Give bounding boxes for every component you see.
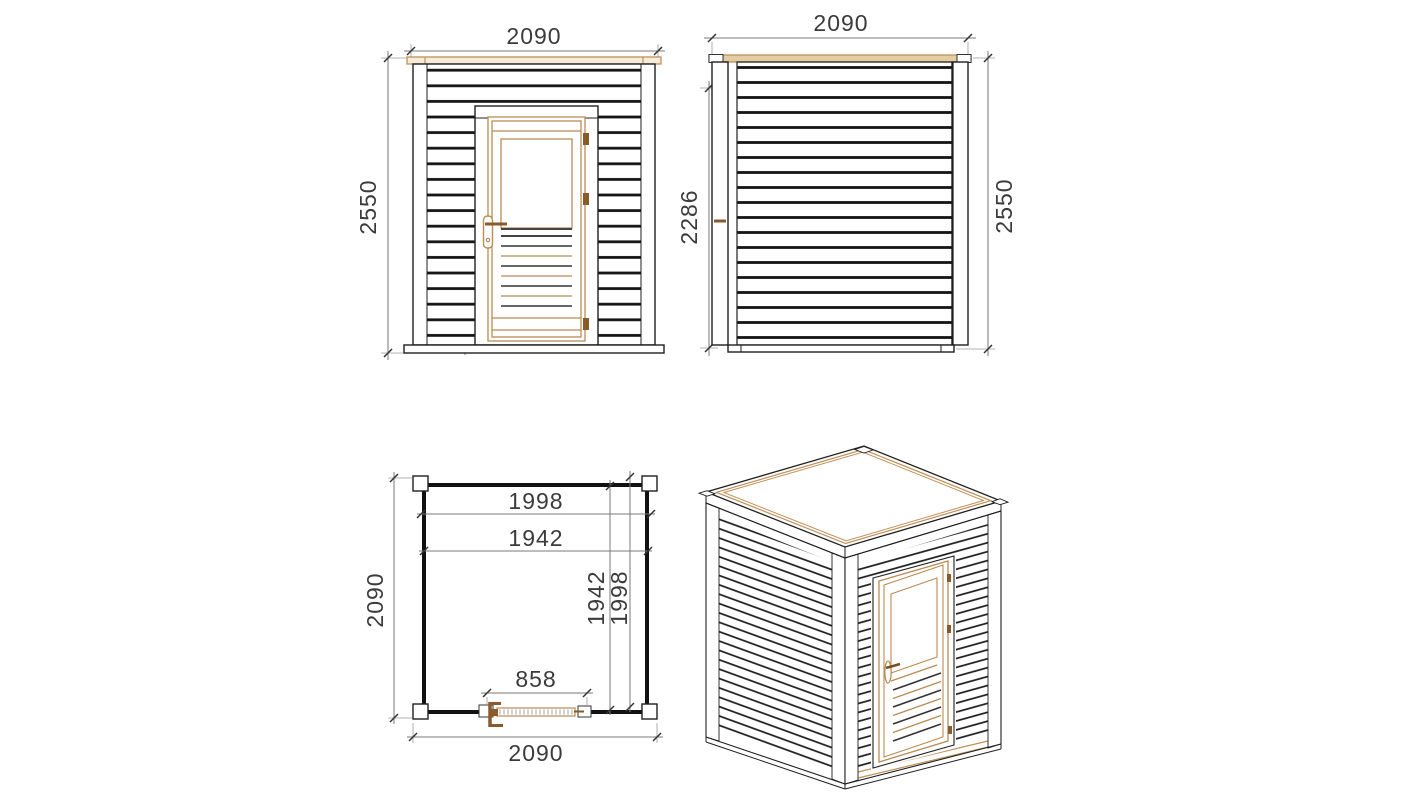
floor-plan-view: 1998 1942 1942 1998 858 xyxy=(362,471,663,766)
iso-door xyxy=(871,553,956,770)
plan-inner-width-a-label: 1998 xyxy=(508,488,563,514)
front-height-dimension: 2550 xyxy=(355,51,408,360)
iso-door-window xyxy=(891,578,937,673)
isometric-view xyxy=(699,446,1008,789)
plan-inner-width-dimension-b: 1942 xyxy=(419,525,652,555)
rear-base xyxy=(728,345,954,352)
plan-overall-width-dimension: 2090 xyxy=(407,723,663,766)
plan-overall-depth-dimension: 2090 xyxy=(362,472,412,724)
rear-width-dimension: 2090 xyxy=(704,10,976,56)
plan-post-bottom-left xyxy=(413,704,428,719)
front-roof-strip xyxy=(407,57,661,64)
front-door-window xyxy=(501,139,572,228)
plan-inner-depth-b-label: 1998 xyxy=(606,570,632,625)
rear-elevation-view: 2090 2286 2550 xyxy=(676,10,1017,356)
iso-left-wall xyxy=(706,503,845,784)
front-door xyxy=(475,106,598,345)
front-height-label: 2550 xyxy=(355,179,381,234)
plan-overall-width-label: 2090 xyxy=(508,740,563,766)
front-width-label: 2090 xyxy=(506,23,561,49)
front-base xyxy=(404,345,664,353)
plan-post-top-left xyxy=(413,476,428,491)
plan-inner-width-b-label: 1942 xyxy=(508,525,563,551)
plan-overall-depth-label: 2090 xyxy=(362,572,388,627)
rear-roof-strip xyxy=(709,55,971,63)
rear-width-label: 2090 xyxy=(813,10,868,36)
rear-wall xyxy=(712,62,968,345)
plan-door-opening-label: 858 xyxy=(515,666,556,692)
technical-drawing-canvas: 2090 2550 2000 xyxy=(0,0,1422,800)
plan-inner-width-dimension-a: 1998 xyxy=(417,488,655,518)
rear-height-label: 2550 xyxy=(991,178,1017,233)
plan-door-opening-dimension: 858 xyxy=(481,666,593,706)
plan-door xyxy=(479,702,591,727)
front-elevation-view: 2090 2550 2000 xyxy=(355,23,665,360)
rear-wall-height-label: 2286 xyxy=(676,189,702,244)
plan-post-top-right xyxy=(642,476,657,491)
plan-post-bottom-right xyxy=(642,704,657,719)
front-width-dimension: 2090 xyxy=(404,23,665,58)
